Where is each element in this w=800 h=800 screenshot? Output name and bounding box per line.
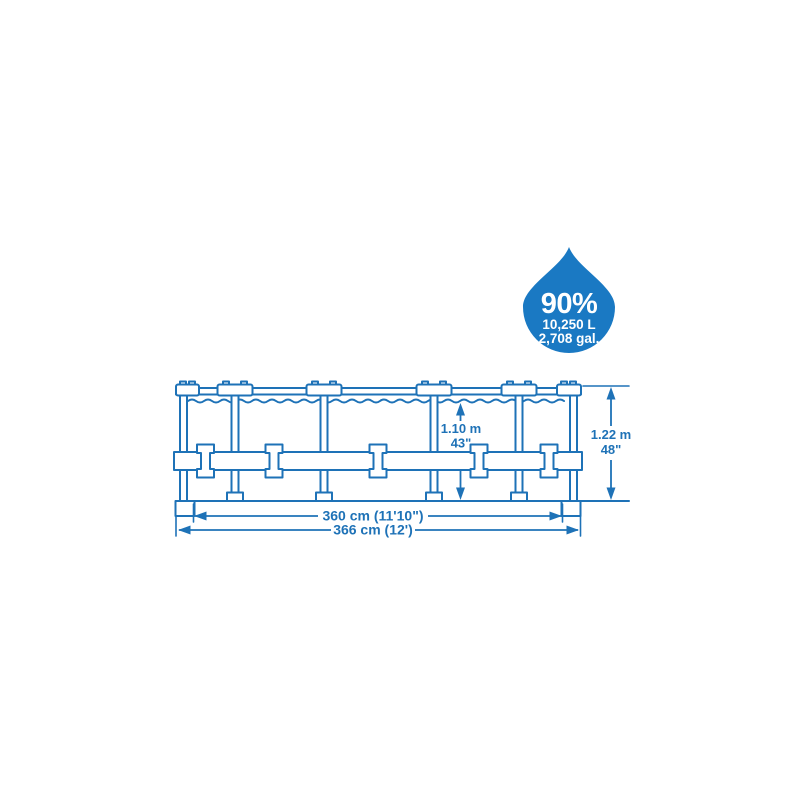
leg-base <box>426 493 442 502</box>
arrowhead-right <box>550 512 563 521</box>
pool-foot <box>562 501 581 516</box>
arrowhead-up <box>607 387 616 400</box>
rail-cap <box>557 385 581 396</box>
pool-leg <box>516 395 523 501</box>
arrowhead-right <box>567 526 580 535</box>
dimension-labels: 1.10 m 43" 1.22 m 48" 360 cm (11'10") 36… <box>322 421 631 538</box>
arrowhead-down <box>456 488 465 501</box>
frame-height-imperial-label: 48" <box>601 442 622 457</box>
rail-cap <box>417 385 452 396</box>
leg-base <box>227 493 243 502</box>
rail-cap <box>307 385 342 396</box>
rail-cap <box>502 385 537 396</box>
badge-capacity-gallons: 2,708 gal. <box>539 331 600 346</box>
pool-spec-figure: 90% 10,250 L 2,708 gal. <box>0 0 800 800</box>
pool-leg <box>232 395 239 501</box>
leg-base <box>316 493 332 502</box>
water-height-imperial-label: 43" <box>451 436 472 451</box>
arrowhead-down <box>607 488 616 501</box>
product-spec-image: 90% 10,250 L 2,708 gal. <box>0 0 800 800</box>
arrowhead-left <box>194 512 207 521</box>
pool-leg <box>570 395 577 501</box>
pool-leg <box>431 395 438 501</box>
frame-height-metric-label: 1.22 m <box>591 427 631 442</box>
pool-foot <box>176 501 195 516</box>
badge-capacity-liters: 10,250 L <box>542 317 595 332</box>
pool-leg <box>321 395 328 501</box>
arrowhead-up <box>456 403 465 416</box>
capacity-badge: 90% 10,250 L 2,708 gal. <box>523 247 615 353</box>
frame-diameter-label: 366 cm (12') <box>333 522 413 538</box>
rail-cap <box>218 385 253 396</box>
leg-base <box>511 493 527 502</box>
water-height-metric-label: 1.10 m <box>441 421 481 436</box>
badge-fill-percent: 90% <box>541 288 598 320</box>
pool-leg <box>180 395 187 501</box>
arrowhead-left <box>178 526 191 535</box>
water-surface-line <box>188 400 564 403</box>
rail-cap <box>176 385 199 396</box>
